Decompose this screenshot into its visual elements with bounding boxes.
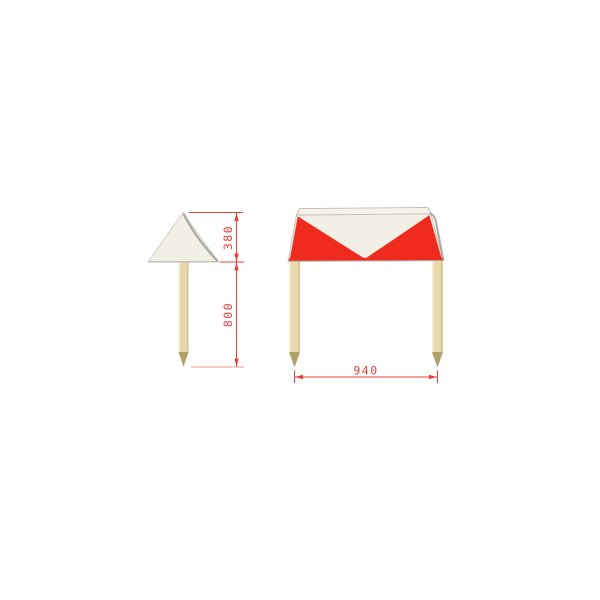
front-view bbox=[288, 208, 443, 368]
arrowhead-800-bottom bbox=[234, 359, 238, 367]
dim-label-380: 380 bbox=[221, 225, 235, 250]
arrowhead-380-top bbox=[234, 213, 238, 221]
side-cone bbox=[148, 213, 219, 263]
front-post-left-tip bbox=[289, 352, 300, 368]
side-post-tip bbox=[179, 352, 189, 367]
technical-drawing: 380 800 940 bbox=[0, 0, 600, 600]
arrowhead-380-bottom bbox=[234, 254, 238, 262]
arrowhead-940-right bbox=[429, 375, 437, 379]
front-post-right-tip bbox=[432, 352, 443, 368]
side-view bbox=[148, 213, 219, 368]
arrowhead-940-left bbox=[295, 375, 303, 379]
dim-label-940: 940 bbox=[353, 364, 378, 378]
drawing-canvas: 380 800 940 bbox=[0, 0, 600, 600]
arrowhead-800-top bbox=[234, 262, 238, 270]
front-panel-base-line bbox=[288, 261, 443, 262]
dim-label-800: 800 bbox=[221, 302, 235, 327]
